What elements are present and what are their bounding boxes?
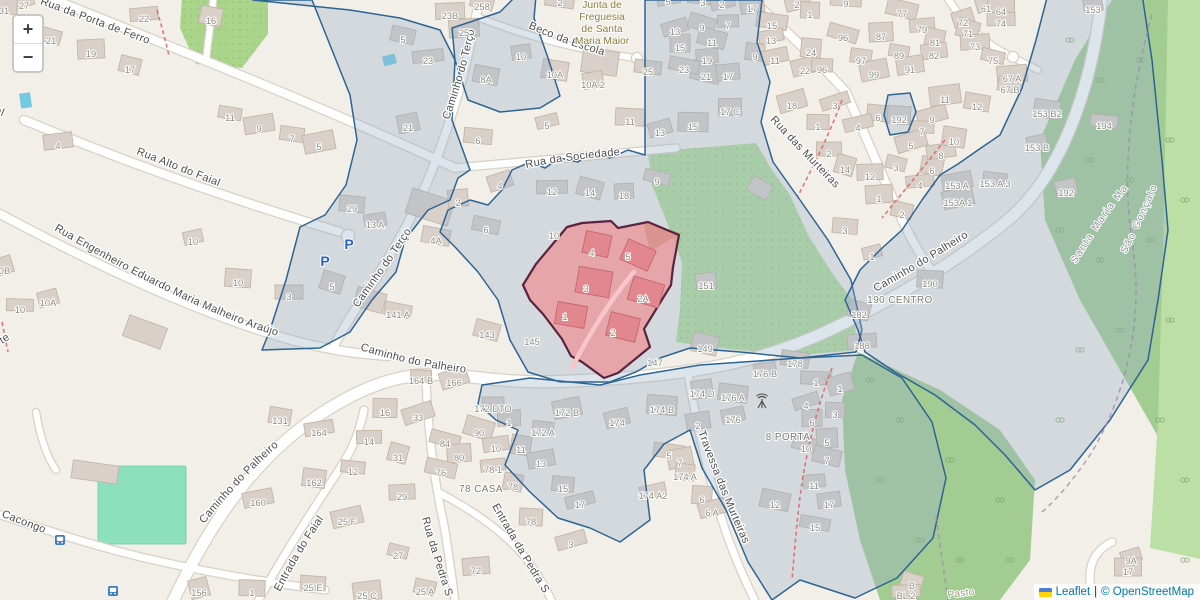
house-number-label: 156	[191, 588, 207, 598]
house-number-label: 14	[840, 165, 850, 175]
house-number-label: 1	[813, 378, 818, 388]
house-number-label: 13 A	[366, 220, 385, 230]
house-number-label: 25	[643, 67, 653, 77]
house-number-label: 27	[393, 551, 403, 561]
house-number-label: 74	[996, 19, 1006, 29]
osm-link[interactable]: © OpenStreetMap	[1101, 586, 1194, 598]
house-number-label: 22	[800, 66, 810, 76]
house-number-label: 10A 2	[581, 80, 605, 90]
house-number-label: 97	[856, 56, 866, 66]
house-number-label: 3	[842, 226, 847, 236]
house-number-label: 17	[824, 500, 834, 510]
house-number-label: 25 E	[303, 583, 322, 593]
house-number-label: 17	[1123, 567, 1133, 577]
house-number-label: 81	[930, 38, 940, 48]
house-number-label: 7	[289, 134, 294, 144]
house-number-label: 182	[851, 310, 867, 320]
house-number-label: 11	[770, 56, 780, 66]
house-number-label: 15	[675, 43, 685, 53]
house-number-label: 172 A	[531, 428, 556, 438]
house-number-label: 153 A	[945, 181, 970, 191]
house-number-label: BL 2	[897, 591, 916, 600]
parking-icon: P	[320, 253, 329, 269]
house-number-label: 16	[380, 408, 390, 418]
house-number-label: 6	[483, 225, 488, 235]
zoom-out-button[interactable]: −	[14, 44, 42, 71]
house-number-label: 153 B2	[1032, 109, 1061, 119]
house-number-label: 174 B	[650, 405, 674, 415]
house-number-label: 147	[647, 358, 663, 368]
poi-label-junta-freguesia: de Santa	[581, 24, 622, 35]
house-number-label: 72	[958, 18, 968, 28]
house-number-label: 9A	[1125, 556, 1137, 566]
house-number-label: 151	[698, 281, 714, 291]
house-number-label: 153 A 3	[979, 179, 1010, 189]
house-number-label: 1	[815, 122, 820, 132]
house-number-label: 6	[809, 418, 814, 428]
house-number-label: 143	[479, 330, 495, 340]
house-number-label: 5	[329, 282, 334, 292]
house-number-label: 7	[919, 127, 924, 137]
house-number-label: 2A	[637, 294, 649, 304]
house-number-label: 14	[585, 188, 595, 198]
house-number-label: 10	[549, 231, 559, 241]
house-number-label: 10	[516, 52, 526, 62]
house-number-label: 22	[139, 14, 149, 24]
house-number-label: 77	[897, 9, 907, 19]
house-number-label: 5	[665, 0, 670, 7]
house-number-label: 31	[393, 453, 403, 463]
zoom-in-button[interactable]: +	[14, 16, 42, 43]
house-number-label: 10	[949, 137, 959, 147]
house-number-label: 9	[699, 23, 704, 33]
house-number-label: 78	[526, 517, 536, 527]
house-number-label: 9	[752, 52, 757, 62]
house-number-label: 3	[286, 292, 291, 302]
house-number-label: 3	[832, 101, 837, 111]
house-number-label: 4	[589, 248, 594, 258]
house-number-label: 13	[670, 27, 680, 37]
map-canvas[interactable]: Rua da Porta de Ferroo FaialRua Alto do …	[0, 0, 1200, 600]
house-number-label: 9	[256, 124, 261, 134]
house-number-label: 2	[794, 0, 799, 10]
house-number-label: 17 C	[720, 107, 740, 117]
house-number-label: 31	[0, 6, 9, 16]
house-number-label: 188	[854, 341, 870, 351]
house-number-label: 14	[364, 437, 374, 447]
map-viewport[interactable]: Rua da Porta de Ferroo FaialRua Alto do …	[0, 0, 1200, 600]
poi-label-junta-freguesia: Junta de	[582, 0, 622, 11]
house-number-label: 2	[455, 198, 460, 208]
house-number-label: 172 B	[555, 408, 579, 418]
house-number-label: 96	[817, 65, 827, 75]
house-number-label: 11	[809, 481, 819, 491]
house-number-label: 12	[972, 102, 982, 112]
house-number-label: 13	[536, 459, 546, 469]
house-number-label: 4	[917, 181, 922, 191]
house-number-label: 4	[55, 141, 60, 151]
house-number-label: 11	[625, 117, 635, 127]
house-number-label: 174 D	[690, 389, 715, 399]
house-number-label: 3	[700, 0, 705, 8]
place-label: 190 CENTRO	[867, 295, 932, 306]
poi-label-junta-freguesia: Maria Maior	[575, 36, 630, 47]
house-number-label: 10A	[547, 70, 564, 80]
house-number-label: 67 A	[1003, 74, 1022, 84]
house-number-label: 18	[787, 101, 797, 111]
house-number-label: 5	[316, 142, 321, 152]
house-number-label: 23B	[442, 11, 459, 21]
house-number-label: 4	[497, 181, 502, 191]
house-number-label: 90	[474, 428, 484, 438]
bus-stop-icon	[55, 535, 65, 545]
house-number-label: 176	[725, 415, 741, 425]
house-number-label: 2	[826, 149, 831, 159]
house-number-label: 145	[524, 337, 540, 347]
house-number-label: 2	[899, 210, 904, 220]
house-number-label: 6	[475, 136, 480, 146]
house-number-label: 73	[970, 42, 980, 52]
attribution-bar: Leaflet | © OpenStreetMap	[1034, 584, 1200, 600]
house-number-label: 79	[917, 25, 927, 35]
house-number-label: 29	[397, 492, 407, 502]
house-number-label: 82	[929, 51, 939, 61]
house-number-label: 10A	[40, 298, 57, 308]
house-number-label: 89	[894, 51, 904, 61]
house-number-label: 4A	[430, 236, 442, 246]
house-number-label: 192	[1058, 188, 1074, 198]
house-number-label: 7	[824, 456, 829, 466]
house-number-label: 176 A	[721, 393, 746, 403]
house-number-label: 6	[699, 495, 704, 505]
house-number-label: 149	[697, 344, 713, 354]
place-label: 78 CASA	[459, 484, 503, 495]
house-number-label: 11	[940, 95, 950, 105]
house-number-label: 12	[547, 187, 557, 197]
house-number-label: 15	[558, 484, 568, 494]
house-number-label: 166	[446, 378, 462, 388]
house-number-label: 10B	[0, 266, 10, 276]
house-number-label: 29	[347, 204, 357, 214]
house-number-label: 6	[929, 166, 934, 176]
house-number-label: 258	[474, 2, 490, 12]
house-number-label: 21	[46, 36, 56, 46]
house-number-label: 5	[400, 35, 405, 45]
house-number-label: 194	[1096, 121, 1112, 131]
house-number-label: 164 B	[409, 376, 433, 386]
house-number-label: 17	[575, 500, 585, 510]
house-number-label: 24	[806, 48, 816, 58]
house-number-label: 192	[891, 115, 907, 125]
house-number-label: 12	[348, 467, 358, 477]
house-number-label: B	[909, 581, 915, 591]
house-number-label: 2	[695, 421, 700, 431]
parking-icon: P	[344, 236, 353, 252]
house-number-label: 12	[770, 500, 780, 510]
house-number-label: 91	[905, 65, 915, 75]
house-number-label: 80	[454, 453, 464, 463]
house-number-label: 25 C	[357, 591, 377, 600]
house-number-label: 25 F	[338, 517, 357, 527]
house-number-label: 162	[306, 478, 322, 488]
house-number-label: 10	[15, 305, 25, 315]
house-number-label: 25 A	[416, 587, 435, 597]
house-number-label: 23	[423, 56, 433, 66]
place-label: 8 PORTA	[766, 432, 811, 443]
house-number-label: 15	[810, 523, 820, 533]
house-number-label: 153	[1085, 5, 1101, 15]
house-number-label: 78	[508, 482, 518, 492]
house-number-label: 174	[609, 418, 625, 428]
house-number-label: 5	[666, 451, 671, 461]
house-number-label: 72	[471, 566, 481, 576]
house-number-label: 3	[583, 284, 588, 294]
house-number-label: 11	[707, 38, 717, 48]
house-number-label: 13	[655, 128, 665, 138]
house-number-label: 3	[568, 540, 573, 550]
house-number-label: 5	[625, 252, 630, 262]
house-number-label: 27	[19, 1, 29, 11]
house-number-label: 178	[787, 359, 803, 369]
attribution-separator: |	[1094, 586, 1097, 598]
house-number-label: 78 1	[484, 465, 502, 475]
house-number-label: 10	[188, 237, 198, 247]
ukraine-flag-icon	[1039, 588, 1052, 597]
house-number-label: 2	[610, 328, 615, 338]
house-number-label: 3	[832, 410, 837, 420]
bus-stop-icon	[108, 586, 118, 596]
house-number-label: 4	[803, 401, 808, 411]
house-number-label: 2	[719, 0, 724, 10]
house-number-label: 23	[679, 65, 689, 75]
house-number-label: 141 A	[386, 310, 411, 320]
house-number-label: 3	[893, 163, 898, 173]
house-number-label: 1	[807, 10, 812, 20]
house-number-label: 1	[869, 252, 874, 262]
house-number-label: 6 A	[705, 508, 719, 518]
house-number-label: 13	[766, 36, 776, 46]
house-number-label: 19	[702, 56, 712, 66]
house-number-label: 2	[557, 0, 562, 8]
house-number-label: 61	[981, 4, 991, 14]
house-number-label: 5	[908, 141, 913, 151]
house-number-label: 7	[677, 458, 682, 468]
house-number-label: 87	[876, 32, 886, 42]
house-number-label: 153 B	[1025, 143, 1049, 153]
house-number-label: 19	[86, 49, 96, 59]
house-number-label: 8	[938, 151, 943, 161]
house-number-label: 9	[929, 115, 934, 125]
house-number-label: 75	[988, 56, 998, 66]
house-number-label: 76	[436, 468, 446, 478]
house-number-label: 1	[562, 312, 567, 322]
house-number-label: 160	[250, 498, 266, 508]
house-number-label: 21	[701, 72, 711, 82]
house-number-label: 10	[801, 444, 811, 454]
poi-label-junta-freguesia: Freguesia	[579, 12, 625, 23]
house-number-label: 10	[491, 444, 501, 454]
house-number-label: 164	[311, 428, 327, 438]
house-number-label: 174 A2	[639, 491, 668, 501]
house-number-label: 1	[506, 418, 511, 428]
house-number-label: 176 B	[753, 369, 777, 379]
house-number-label: 172 DTO	[474, 404, 512, 414]
house-number-label: 190	[922, 279, 938, 289]
house-number-label: 12	[865, 172, 875, 182]
house-number-label: 33	[413, 413, 423, 423]
house-number-label: 131	[272, 416, 288, 426]
house-number-label: 17	[723, 72, 733, 82]
house-number-label: 153A 1	[944, 198, 973, 208]
house-number-label: 64	[996, 7, 1006, 17]
leaflet-link[interactable]: Leaflet	[1056, 586, 1091, 598]
house-number-label: 6	[875, 113, 880, 123]
house-number-label: 7	[725, 21, 730, 31]
house-number-label: 174 A	[673, 472, 698, 482]
house-number-label: 25	[459, 28, 469, 38]
house-number-label: 5	[544, 121, 549, 131]
house-number-label: 96	[838, 33, 848, 43]
house-number-label: 18	[619, 191, 629, 201]
house-number-label: 99	[869, 70, 879, 80]
house-number-label: 67 B	[1000, 85, 1019, 95]
house-number-label: 15	[688, 122, 698, 132]
house-number-label: 9	[654, 177, 659, 187]
house-number-label: 71	[963, 29, 973, 39]
house-number-label: 17	[125, 65, 135, 75]
house-number-label: 16	[206, 16, 216, 26]
house-number-label: 1	[249, 588, 254, 598]
house-number-label: 15	[767, 21, 777, 31]
zoom-control: + −	[12, 14, 44, 73]
house-number-label: 10	[233, 278, 243, 288]
house-number-label: 11	[225, 113, 235, 123]
house-number-label: 9	[843, 0, 848, 9]
house-number-label: 4	[855, 123, 860, 133]
house-number-label: 17	[747, 4, 757, 14]
house-number-label: 8A	[480, 75, 492, 85]
house-number-label: 11	[516, 445, 526, 455]
house-number-label: 1	[837, 384, 842, 394]
house-number-label: 84	[440, 439, 450, 449]
house-number-label: 1	[876, 194, 881, 204]
house-number-label: 5	[824, 438, 829, 448]
house-number-label: 21	[403, 123, 413, 133]
